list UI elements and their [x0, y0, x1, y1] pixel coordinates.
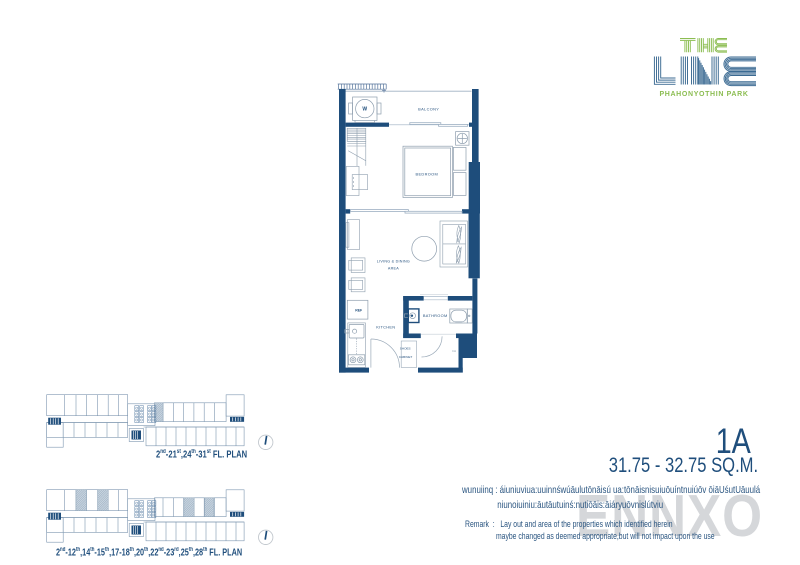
svg-text:KITCHEN: KITCHEN — [376, 325, 395, 330]
svg-text:CH: CH — [452, 349, 456, 353]
svg-text:BATHROOM: BATHROOM — [423, 313, 448, 318]
svg-text:LIVING & DINING: LIVING & DINING — [377, 259, 410, 263]
svg-text:AREA: AREA — [388, 266, 399, 270]
svg-text:REF: REF — [355, 308, 363, 312]
svg-text:W: W — [362, 107, 367, 113]
svg-text:SHOES: SHOES — [400, 347, 411, 351]
svg-text:BEDROOM: BEDROOM — [416, 171, 439, 176]
svg-text:BALCONY: BALCONY — [418, 106, 439, 111]
svg-text:CABINET: CABINET — [399, 355, 413, 359]
svg-text:PHAHONYOTHIN PARK: PHAHONYOTHIN PARK — [659, 91, 748, 98]
